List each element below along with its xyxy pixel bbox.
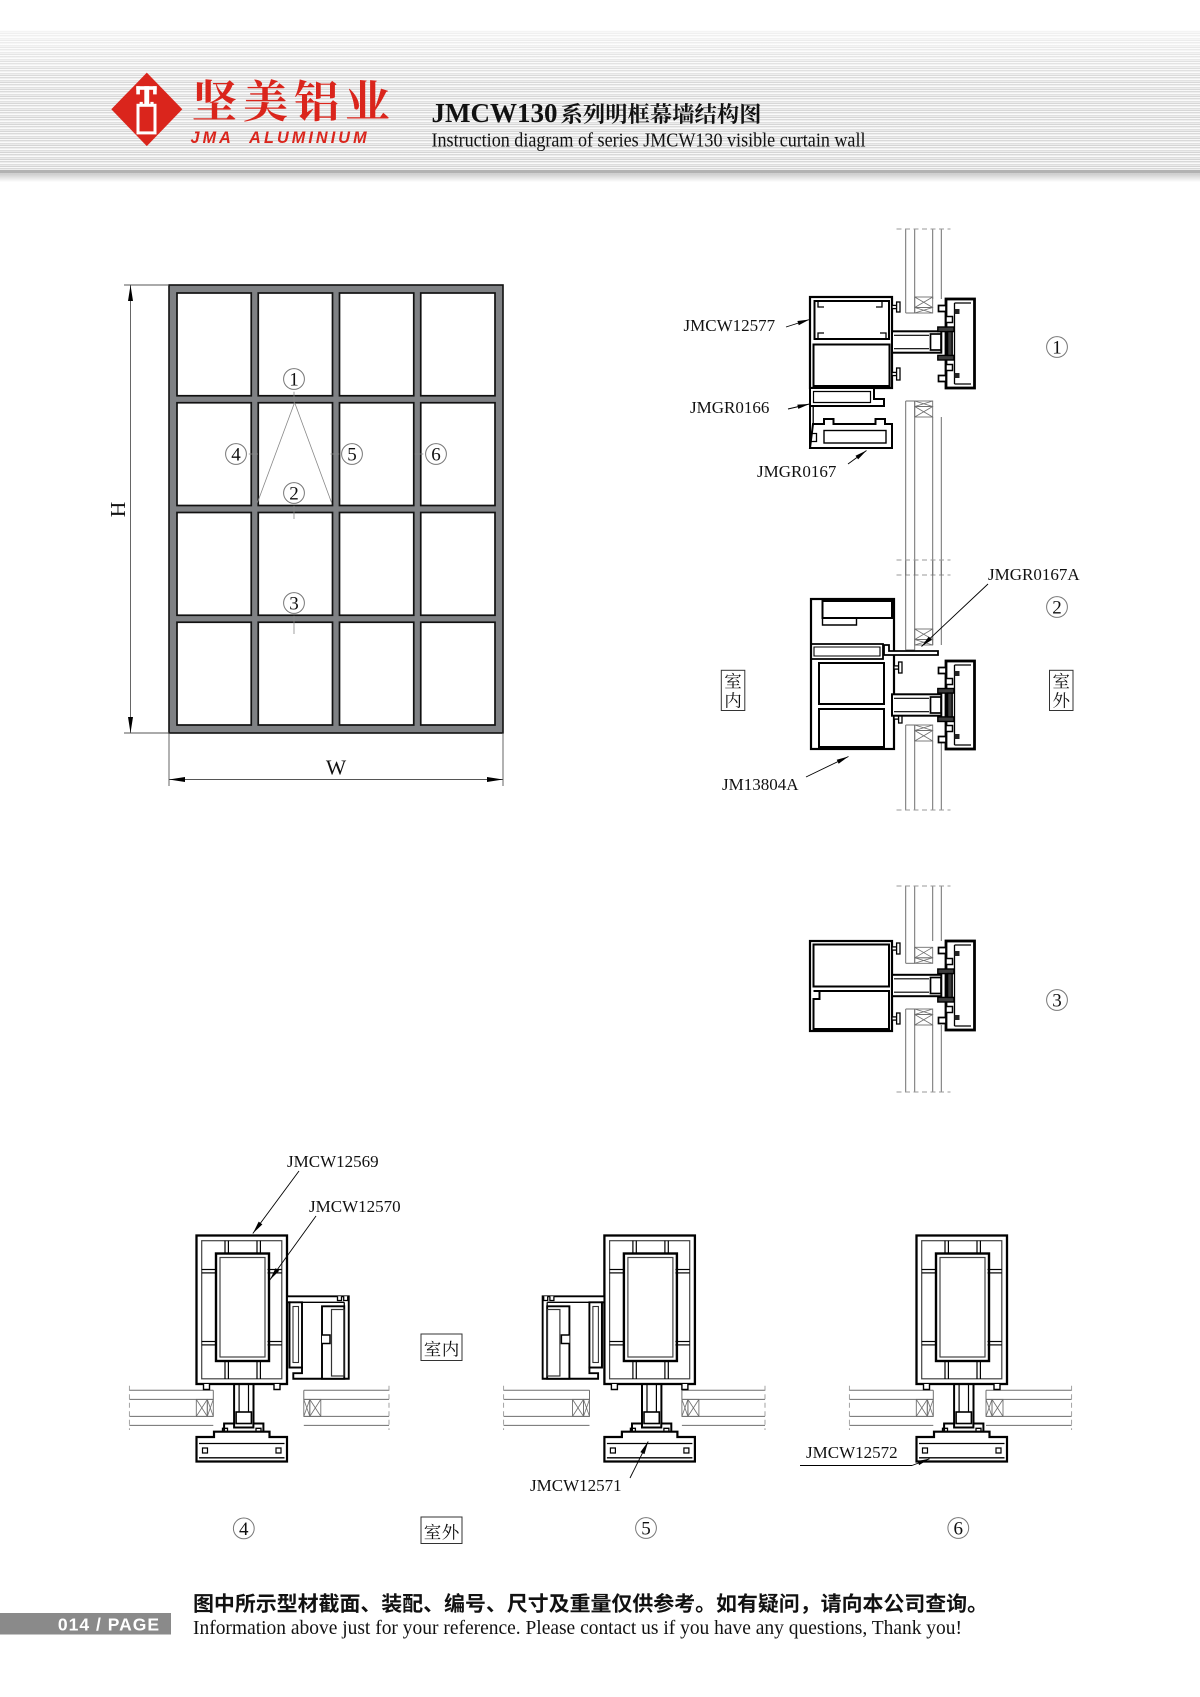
svg-text:JM13804A: JM13804A [722, 775, 799, 794]
svg-text:4: 4 [231, 445, 241, 466]
svg-text:6: 6 [954, 1519, 964, 1540]
svg-text:H: H [106, 502, 130, 518]
svg-text:4: 4 [239, 1519, 249, 1540]
svg-text:3: 3 [1052, 991, 1062, 1012]
svg-text:JMCW130: JMCW130 [432, 98, 558, 128]
svg-text:2: 2 [1052, 598, 1062, 619]
svg-text:Information above just for you: Information above just for your referenc… [193, 1618, 962, 1639]
svg-text:JMCW12569: JMCW12569 [287, 1152, 379, 1171]
svg-text:1: 1 [289, 370, 299, 391]
svg-text:2: 2 [289, 484, 299, 505]
svg-text:1: 1 [1052, 338, 1062, 359]
svg-text:Instruction diagram of series: Instruction diagram of series JMCW130 vi… [432, 131, 867, 152]
svg-text:JMGR0166: JMGR0166 [690, 398, 769, 417]
svg-text:JMGR0167A: JMGR0167A [988, 565, 1080, 584]
svg-text:5: 5 [641, 1519, 651, 1540]
svg-text:W: W [326, 755, 347, 779]
svg-text:3: 3 [289, 594, 299, 615]
svg-text:014 / PAGE: 014 / PAGE [58, 1615, 160, 1635]
svg-text:JMCW12571: JMCW12571 [530, 1476, 622, 1495]
svg-text:JMA ALUMINIUM: JMA ALUMINIUM [191, 129, 370, 147]
svg-text:JMCW12572: JMCW12572 [806, 1443, 898, 1462]
svg-text:JMCW12570: JMCW12570 [309, 1197, 401, 1216]
svg-text:6: 6 [431, 445, 441, 466]
svg-text:5: 5 [347, 445, 357, 466]
svg-text:JMGR0167: JMGR0167 [757, 462, 837, 481]
svg-text:JMCW12577: JMCW12577 [684, 316, 776, 335]
